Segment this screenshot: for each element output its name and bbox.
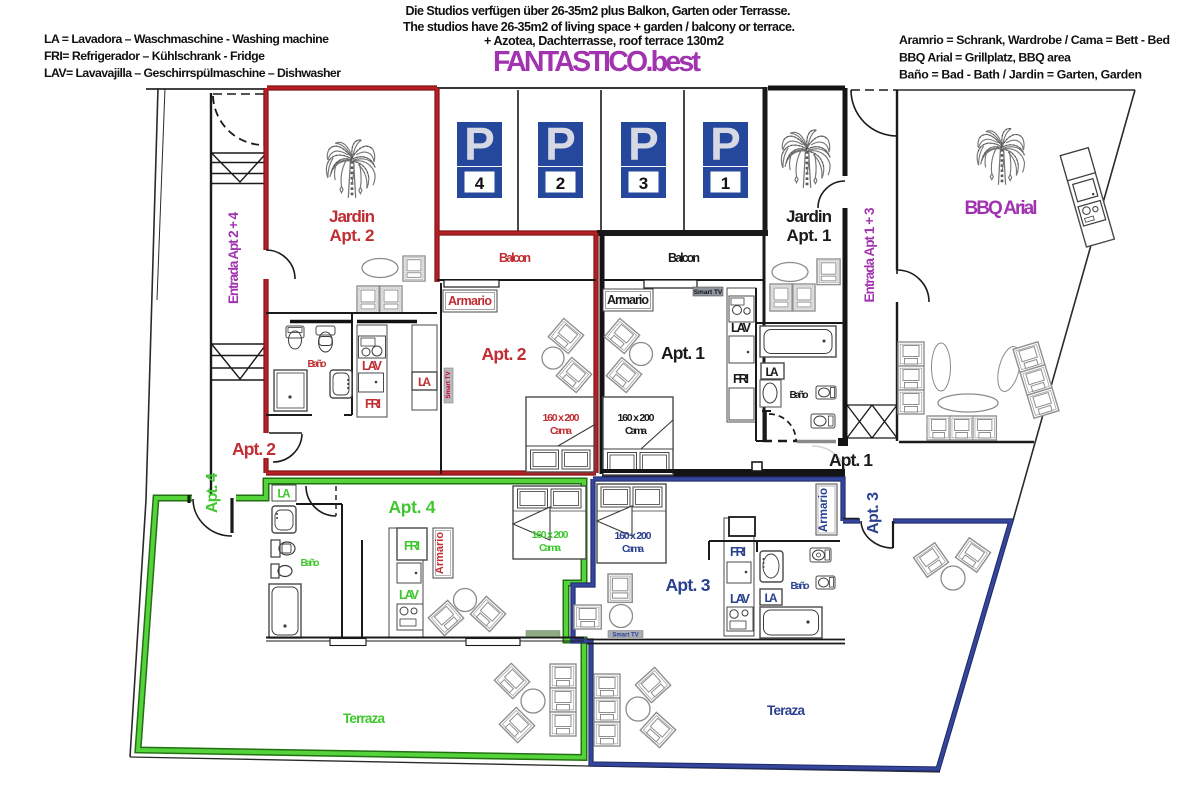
svg-text:Apt. 3: Apt. 3 [865, 492, 882, 534]
svg-text:2: 2 [556, 174, 565, 193]
svg-text:Jardin: Jardin [786, 207, 832, 226]
svg-text:P: P [710, 118, 741, 170]
svg-text:Balcon: Balcon [668, 251, 700, 265]
svg-text:P: P [464, 118, 495, 170]
svg-text:Apt. 1: Apt. 1 [787, 226, 832, 245]
svg-text:Apt. 3: Apt. 3 [666, 575, 711, 595]
svg-text:Entrada Apt 1 + 3: Entrada Apt 1 + 3 [862, 207, 877, 302]
svg-text:Baño: Baño [790, 390, 809, 401]
svg-text:BBQ Arial = Grillplatz, BBQ ar: BBQ Arial = Grillplatz, BBQ area [899, 51, 1071, 65]
svg-text:160 x 200: 160 x 200 [615, 530, 652, 542]
svg-text:LAV= Lavavajilla – Geschirrspü: LAV= Lavavajilla – Geschirrspülmaschine … [44, 66, 341, 80]
svg-text:FRI: FRI [733, 372, 749, 386]
svg-text:LAV: LAV [731, 321, 752, 335]
svg-text:FRI: FRI [730, 545, 746, 559]
svg-text:FANTASTICO.best: FANTASTICO.best [493, 46, 702, 78]
svg-text:Teraza: Teraza [767, 703, 805, 718]
svg-text:Baño: Baño [791, 581, 810, 592]
svg-text:160 x 200: 160 x 200 [543, 412, 580, 424]
svg-text:Apt. 1: Apt. 1 [661, 343, 705, 363]
svg-text:FRI= Refrigerador – Kühlschran: FRI= Refrigerador – Kühlschrank - Fridge [44, 49, 265, 63]
svg-text:LAV: LAV [399, 588, 420, 602]
svg-text:Jardin: Jardin [329, 207, 375, 226]
svg-text:FRI: FRI [365, 397, 381, 411]
svg-text:Balcon: Balcon [499, 251, 531, 265]
svg-text:FRI: FRI [404, 539, 420, 553]
svg-text:Cama: Cama [622, 543, 644, 555]
svg-text:Armario: Armario [434, 532, 446, 574]
svg-text:LA: LA [765, 591, 778, 605]
svg-text:Apt. 2: Apt. 2 [482, 344, 527, 364]
svg-text:Terraza: Terraza [343, 711, 385, 726]
svg-text:1: 1 [721, 174, 730, 193]
svg-text:Entrada Apt 2 + 4: Entrada Apt 2 + 4 [226, 212, 241, 304]
svg-text:3: 3 [639, 174, 648, 193]
svg-text:160 x 200: 160 x 200 [618, 412, 655, 424]
svg-text:LAV: LAV [730, 592, 751, 606]
svg-text:Smart TV: Smart TV [694, 289, 723, 296]
svg-text:Smart TV: Smart TV [445, 371, 452, 399]
svg-text:LA: LA [418, 375, 431, 389]
svg-text:Apt. 1: Apt. 1 [829, 450, 873, 470]
svg-text:Baño = Bad - Bath / Jardin =: Baño = Bad - Bath / Jardin = Garten, Gar… [899, 68, 1142, 82]
svg-text:Apt. 4: Apt. 4 [389, 497, 436, 517]
svg-text:P: P [545, 118, 576, 170]
svg-text:Cama: Cama [625, 425, 647, 437]
svg-text:LAV: LAV [362, 359, 383, 373]
svg-text:4: 4 [475, 174, 485, 193]
svg-text:LA = Lavadora – Waschmaschine: LA = Lavadora – Waschmaschine - Washing … [44, 32, 329, 46]
svg-text:160 x 200: 160 x 200 [532, 529, 569, 541]
svg-text:Armario: Armario [607, 293, 649, 307]
svg-text:Apt. 4: Apt. 4 [204, 473, 221, 513]
svg-text:BBQ Arial: BBQ Arial [965, 198, 1038, 219]
svg-text:Cama: Cama [550, 425, 572, 437]
svg-text:LA: LA [766, 365, 779, 379]
svg-text:P: P [628, 118, 659, 170]
svg-text:The studios have 26-35m2 of li: The studios have 26-35m2 of living space… [403, 20, 795, 34]
svg-text:Baño: Baño [308, 359, 327, 370]
svg-text:LA: LA [278, 489, 291, 501]
svg-text:Smart TV: Smart TV [612, 633, 638, 639]
svg-text:Aramrio = Schrank, Wardrobe /: Aramrio = Schrank, Wardrobe / Cama = Bet… [899, 33, 1170, 47]
svg-text:Apt. 2: Apt. 2 [330, 226, 375, 245]
svg-text:Armario: Armario [448, 294, 492, 308]
svg-text:Armario: Armario [818, 488, 830, 532]
svg-text:Baño: Baño [301, 558, 320, 569]
svg-text:Apt. 2: Apt. 2 [232, 439, 276, 459]
svg-text:Die Studios verfügen über 26-3: Die Studios verfügen über 26-35m2 plus B… [406, 4, 791, 18]
svg-text:Cama: Cama [539, 542, 561, 554]
